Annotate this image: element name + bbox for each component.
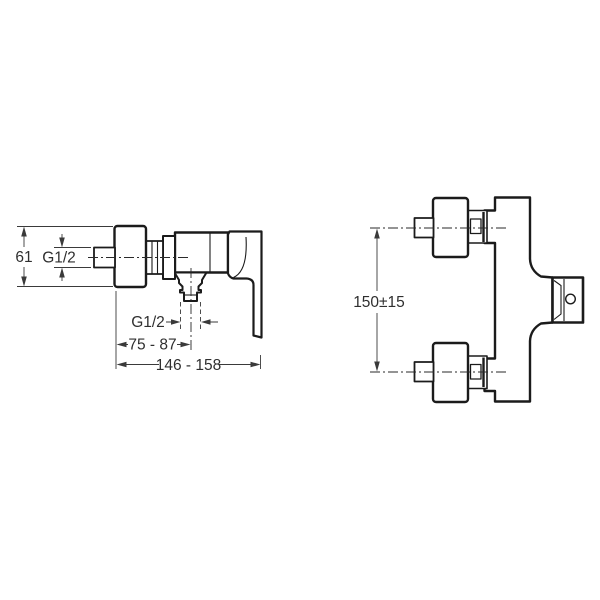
wall-flange-side (115, 226, 147, 287)
dim-label-outlet-offset: 75 - 87 (128, 337, 176, 354)
top-connector-nut (471, 219, 482, 234)
technical-drawing-page: 61 G1/2 G1/2 75 - 87 (0, 0, 600, 600)
mixer-body-side (175, 233, 228, 273)
dim-label-inlet-thread: G1/2 (42, 250, 76, 267)
dim-label-overall-depth: 146 - 158 (156, 357, 222, 374)
shower-mixer-dimension-drawing: 61 G1/2 G1/2 75 - 87 (0, 0, 600, 600)
dim-label-flange-height: 61 (15, 249, 32, 266)
bottom-wall-flange (433, 343, 468, 402)
handle-screw-hole (566, 294, 576, 304)
dim-label-inlet-spacing: 150±15 (353, 294, 405, 311)
top-wall-flange (433, 198, 468, 257)
dim-label-outlet-thread: G1/2 (131, 314, 165, 331)
